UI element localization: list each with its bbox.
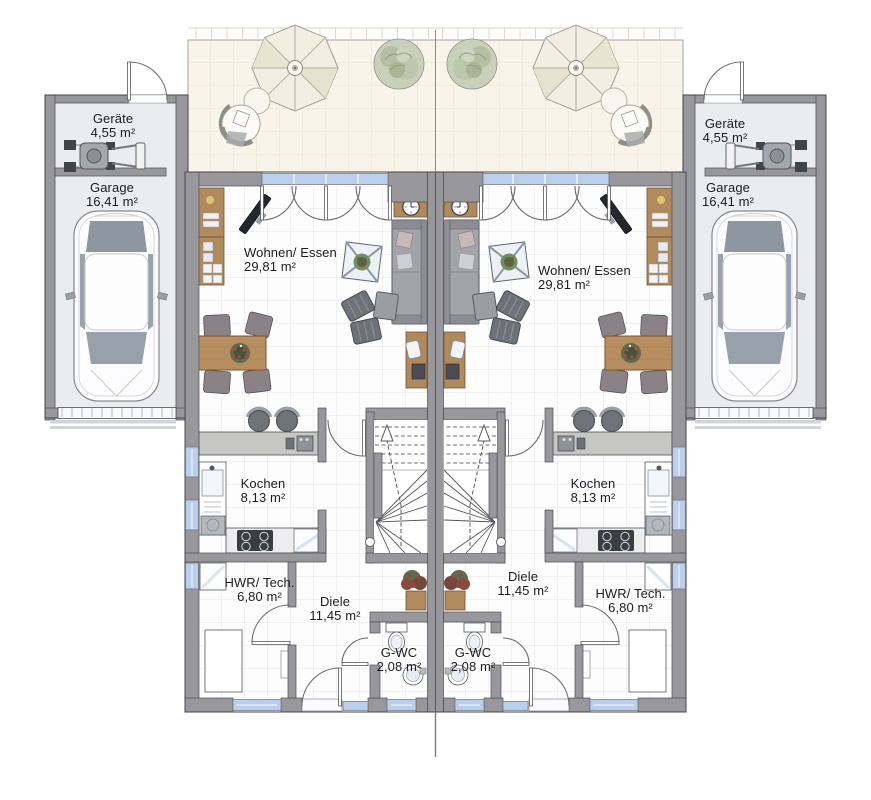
corridor-wall xyxy=(366,408,428,420)
room-area: 4,55 m² xyxy=(675,131,775,145)
kitchen-hwr-wall xyxy=(185,553,326,562)
party-wall xyxy=(428,172,436,712)
room-label-geraete-right: Geräte 4,55 m² xyxy=(675,117,775,145)
dining-chair xyxy=(243,368,271,393)
room-area: 16,41 m² xyxy=(678,195,778,209)
staircase xyxy=(366,420,428,553)
outer-wall-left xyxy=(185,172,199,712)
kitchen-wall xyxy=(318,408,326,462)
room-label-diele-right: Diele 11,45 m² xyxy=(473,570,573,598)
faucet xyxy=(210,466,215,471)
room-area: 6,80 m² xyxy=(578,601,683,615)
room-name: G-WC xyxy=(428,646,518,660)
geraete-door xyxy=(128,62,168,103)
room-area: 4,55 m² xyxy=(63,126,163,140)
room-area: 29,81 m² xyxy=(538,278,668,292)
room-name: Diele xyxy=(473,570,573,584)
room-area: 8,13 m² xyxy=(543,491,643,505)
terrace-glazing xyxy=(262,174,388,185)
entry-sidelight xyxy=(343,702,368,711)
car-windshield xyxy=(86,332,147,364)
room-label-kochen-right: Kochen 8,13 m² xyxy=(543,477,643,505)
tree xyxy=(374,39,424,89)
car xyxy=(65,211,167,401)
room-label-kochen-left: Kochen 8,13 m² xyxy=(213,477,313,505)
room-label-wohnen-left: Wohnen/ Essen 29,81 m² xyxy=(244,246,374,274)
room-name: Kochen xyxy=(213,477,313,491)
room-area: 16,41 m² xyxy=(62,195,162,209)
room-name: Diele xyxy=(285,595,385,609)
pillow xyxy=(396,253,413,270)
room-area: 8,13 m² xyxy=(213,491,313,505)
car-rear-window xyxy=(86,221,147,252)
room-area: 11,45 m² xyxy=(473,584,573,598)
room-name: Kochen xyxy=(543,477,643,491)
room-area: 2,08 m² xyxy=(428,660,518,674)
stair-inner-wall xyxy=(374,453,382,518)
pillow xyxy=(395,231,413,249)
room-name: Wohnen/ Essen xyxy=(244,246,374,260)
newel xyxy=(366,538,375,547)
room-area: 29,81 m² xyxy=(244,260,374,274)
bar-stool xyxy=(248,408,271,431)
desk xyxy=(405,332,427,388)
room-area: 11,45 m² xyxy=(285,609,385,623)
party-pier xyxy=(388,172,428,202)
room-name: HWR/ Tech. xyxy=(207,576,312,590)
dining-chair xyxy=(203,370,230,394)
desk-chair xyxy=(405,340,421,359)
room-label-garage-left: Garage 16,41 m² xyxy=(62,181,162,209)
room-label-diele-left: Diele 11,45 m² xyxy=(285,595,385,623)
shelf-unit xyxy=(198,188,224,285)
worktable xyxy=(205,630,242,692)
coffee-machine xyxy=(297,436,313,451)
room-name: Wohnen/ Essen xyxy=(538,264,668,278)
room-name: Geräte xyxy=(63,112,163,126)
toilet-tank xyxy=(386,623,407,632)
car-roof xyxy=(85,254,148,330)
floor-plan: .w{fill:#98989c;stroke:#4e4e54;stroke-wi… xyxy=(0,0,871,800)
garage-door xyxy=(50,408,176,430)
room-name: Geräte xyxy=(675,117,775,131)
room-name: HWR/ Tech. xyxy=(578,587,683,601)
room-name: Garage xyxy=(62,181,162,195)
bar-stool xyxy=(276,408,299,431)
room-label-garage-right: Garage 16,41 m² xyxy=(678,181,778,209)
room-label-geraete-left: Geräte 4,55 m² xyxy=(63,112,163,140)
dining-chair xyxy=(203,314,230,337)
room-label-hwr-right: HWR/ Tech. 6,80 m² xyxy=(578,587,683,615)
room-name: Garage xyxy=(678,181,778,195)
room-label-gwc-right: G-WC 2,08 m² xyxy=(428,646,518,674)
ottoman xyxy=(373,292,398,321)
room-label-wohnen-right: Wohnen/ Essen 29,81 m² xyxy=(538,264,668,292)
small-appliance xyxy=(286,438,294,449)
